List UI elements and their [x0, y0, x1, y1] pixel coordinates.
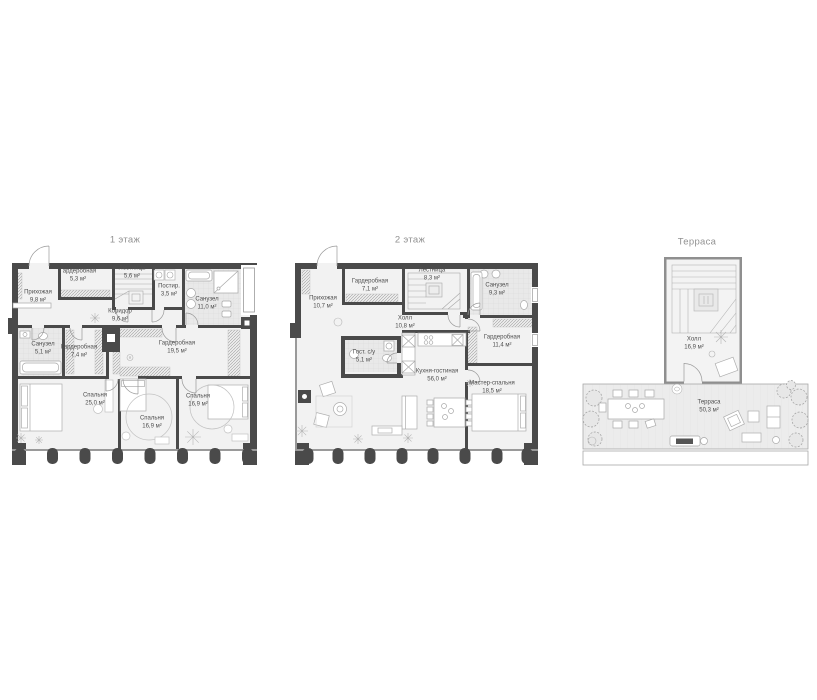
room-label-sanuzel-9-3: Санузел9,3 м²	[485, 283, 508, 298]
floor-plan-2-drawing	[288, 233, 544, 467]
plan-title-level-1: 1 этаж	[110, 235, 140, 246]
room-label-garderobnaya-19-5: Гардеробная19,5 м²	[159, 341, 195, 356]
room-label-postir: Постир.3,5 м²	[158, 284, 180, 299]
room-label-kuhnya-gostinaya: Кухня-гостиная56,0 м²	[416, 369, 458, 384]
room-label-gost-su: Гост. с/у5,1 м²	[353, 350, 375, 365]
room-label-sanuzel-5-1: Санузел5,1 м²	[31, 342, 54, 357]
facade-glazing-left	[295, 338, 297, 449]
room-label-sanuzel-11-0: Санузел11,0 м²	[195, 297, 218, 312]
shaft	[107, 334, 115, 342]
terrace-lower-band	[583, 451, 808, 465]
floor-plan-level-1: 1 этаж Прихожая9,8 м² Гардеробная5,3 м² …	[8, 233, 264, 467]
room-label-garderobnaya-7-1: Гардеробная7,1 м²	[352, 279, 388, 294]
room-label-master-spalnya: Мастер-спальня18,5 м²	[469, 381, 515, 396]
floor-plan-level-2: 2 этаж Прихожая10,7 м² Гардеробная7,1 м²…	[288, 233, 544, 467]
room-label-garderobnaya-11-4: Гардеробная11,4 м²	[484, 335, 520, 350]
room-label-lestnitsa-2: Лестница8,3 м²	[419, 268, 445, 283]
floor-plans-canvas: 1 этаж Прихожая9,8 м² Гардеробная5,3 м² …	[0, 0, 817, 700]
room-label-koridor: Коридор9,6 м²	[108, 309, 132, 324]
plan-title-terrace: Терраса	[678, 237, 717, 248]
room-label-holl-2: Холл10,8 м²	[395, 316, 414, 331]
room-label-spalnya-25-0: Спальня25,0 м²	[83, 393, 107, 408]
room-label-terrasa: Терраса50,3 м²	[697, 400, 720, 415]
room-label-holl-terrace: Холл16,9 м²	[684, 337, 703, 352]
room-label-spalnya-16-9-right: Спальня16,9 м²	[186, 394, 210, 409]
room-label-garderobnaya-7-4: Гардеробная7,4 м²	[61, 345, 97, 360]
window	[241, 265, 257, 315]
vent-shaft	[241, 317, 253, 329]
floor-plan-terrace: Терраса Холл16,9 м² Терраса50,3 м²	[578, 233, 817, 467]
room-label-prihozhaya-1: Прихожая9,8 м²	[24, 290, 52, 305]
room-label-lestnitsa-1: Лестница5,6 м²	[119, 266, 145, 281]
fireplace-icon	[298, 390, 311, 403]
room-label-garderobnaya-5-3: Гардеробная5,3 м²	[60, 269, 96, 284]
dining-table-icon	[427, 398, 472, 427]
room-label-spalnya-16-9-center: Спальня16,9 м²	[140, 416, 164, 431]
room-label-prihozhaya-2: Прихожая10,7 м²	[309, 296, 337, 311]
plan-title-level-2: 2 этаж	[395, 235, 425, 246]
bed-icon	[472, 394, 526, 431]
